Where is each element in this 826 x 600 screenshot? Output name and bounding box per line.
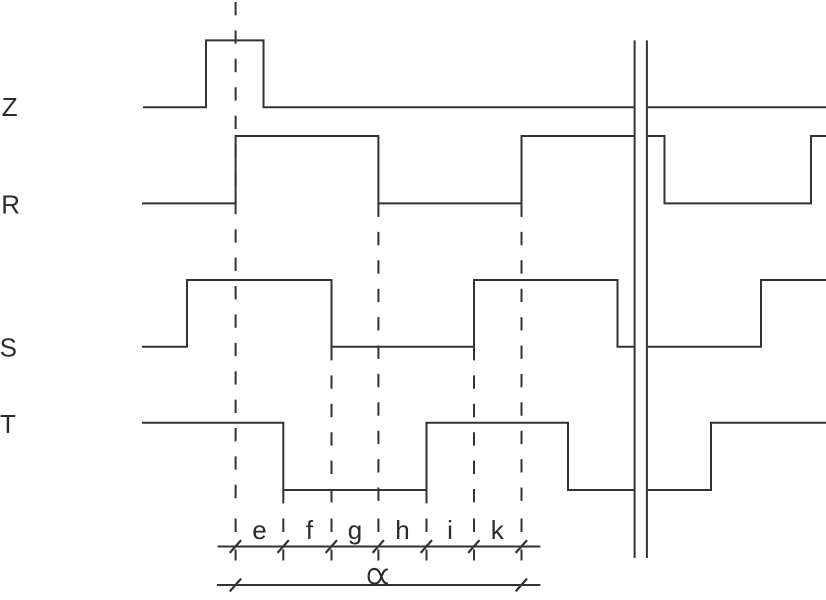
svg-text:h: h xyxy=(395,515,409,545)
svg-text:Z: Z xyxy=(2,92,18,122)
svg-text:S: S xyxy=(0,332,17,362)
svg-text:g: g xyxy=(348,515,362,545)
svg-text:T: T xyxy=(0,409,16,439)
svg-text:f: f xyxy=(306,515,314,545)
svg-text:i: i xyxy=(447,515,453,545)
svg-text:e: e xyxy=(252,515,266,545)
svg-text:k: k xyxy=(491,515,505,545)
svg-text:R: R xyxy=(1,190,20,220)
